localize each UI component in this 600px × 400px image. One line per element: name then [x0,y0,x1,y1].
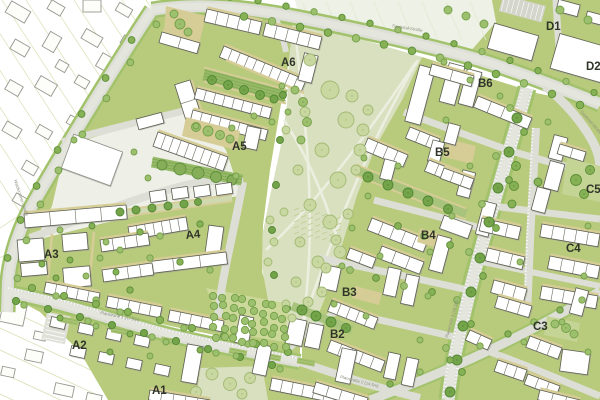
svg-text:A4: A4 [185,228,201,242]
svg-text:D1: D1 [546,21,561,33]
svg-text:A2: A2 [72,340,87,352]
svg-text:D2: D2 [586,61,600,73]
svg-text:B4: B4 [421,230,436,242]
svg-text:C4: C4 [566,243,581,255]
svg-text:C5: C5 [586,184,600,196]
svg-text:A3: A3 [44,249,59,261]
svg-text:B6: B6 [478,78,493,90]
svg-text:B5: B5 [435,147,450,159]
svg-text:B2: B2 [330,329,345,341]
svg-text:A6: A6 [281,57,296,69]
svg-text:C3: C3 [533,321,548,333]
svg-text:B3: B3 [342,287,357,299]
svg-text:A1: A1 [152,385,167,397]
svg-text:A5: A5 [232,141,247,153]
